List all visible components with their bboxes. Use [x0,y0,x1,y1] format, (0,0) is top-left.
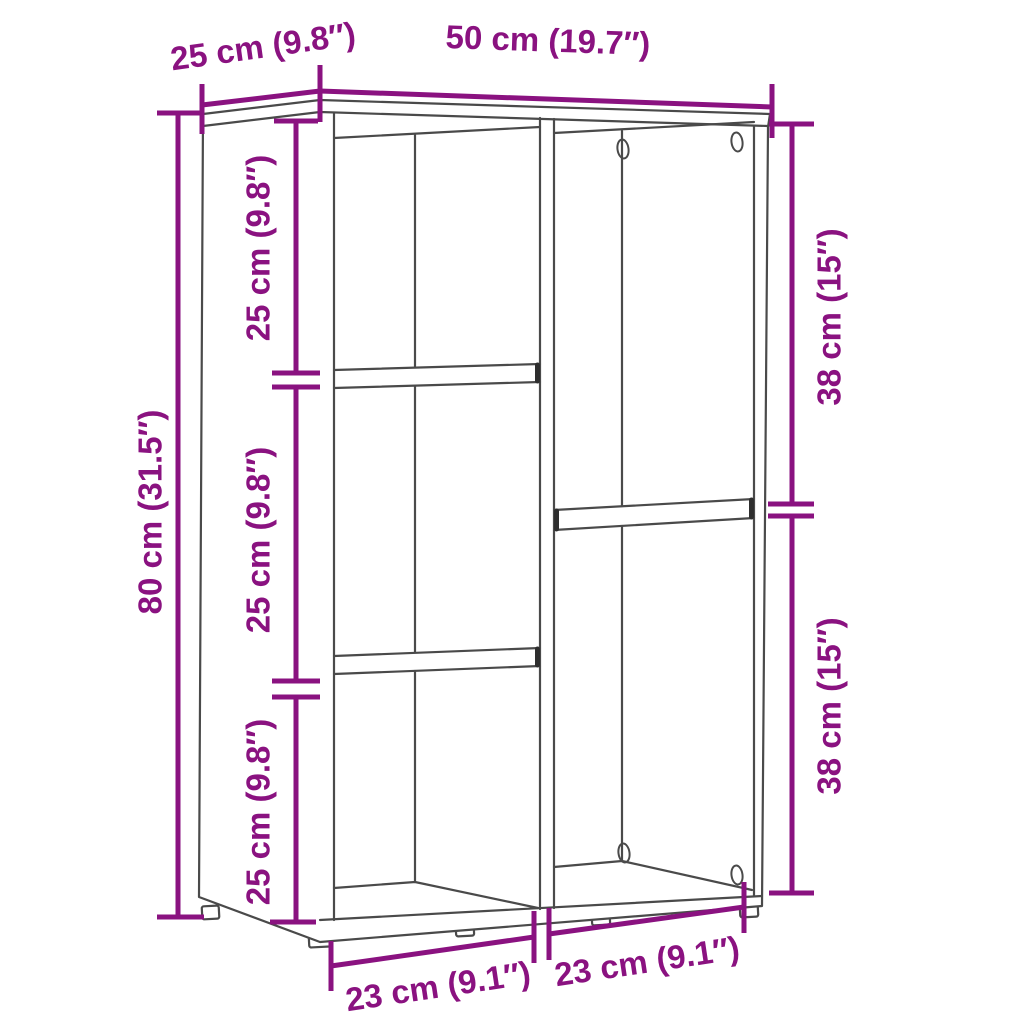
cabinet-silhouette [199,100,770,942]
foot-back-left [202,906,220,920]
label-left-cell-2: 25 cm (9.8″) [240,447,277,633]
label-left-cell-1: 25 cm (9.8″) [240,155,277,341]
label-bottom-cell-1: 23 cm (9.1″) [343,954,533,1018]
label-height: 80 cm (31.5″) [132,410,169,615]
label-left-cell-3: 25 cm (9.8″) [240,719,277,905]
dimension-diagram: 25 cm (9.8″) 50 cm (19.7″) 80 cm (31.5″)… [0,0,1024,1024]
cabinet-drawing [199,100,770,948]
label-right-cell-1: 38 cm (15″) [811,228,848,405]
label-top-depth: 25 cm (9.8″) [168,15,358,78]
label-top-width: 50 cm (19.7″) [445,18,651,62]
dim-line-right-cells [768,124,814,893]
label-bottom-cell-2: 23 cm (9.1″) [552,929,742,993]
label-right-cell-2: 38 cm (15″) [811,617,848,794]
